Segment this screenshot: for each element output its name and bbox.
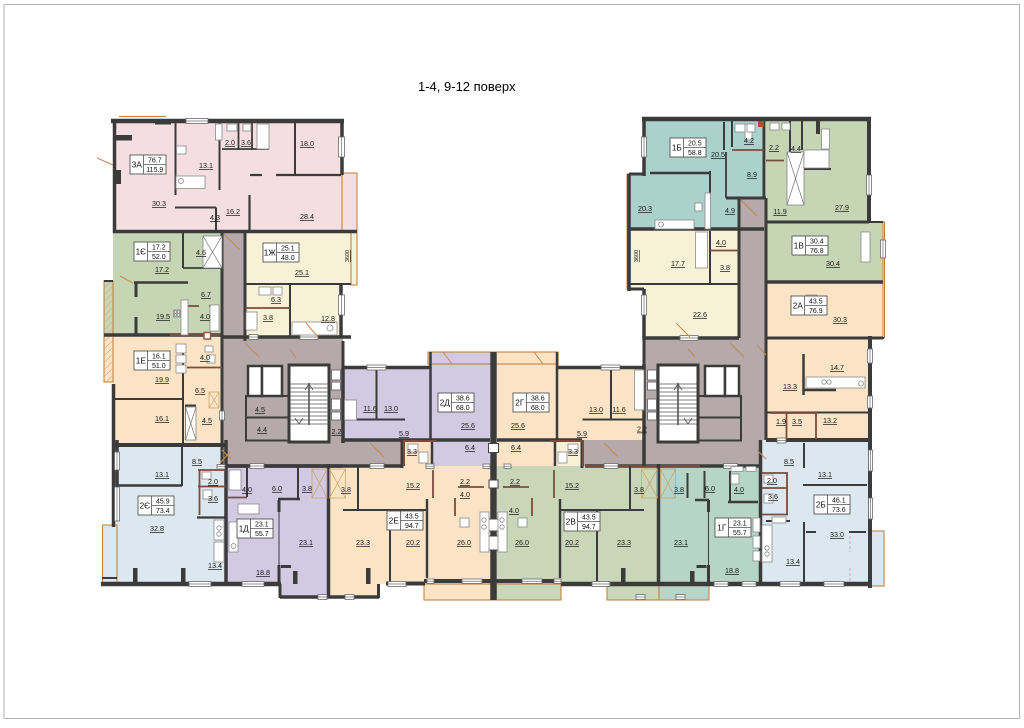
svg-text:2.2: 2.2 bbox=[769, 143, 779, 152]
svg-text:3.8: 3.8 bbox=[302, 484, 312, 493]
svg-text:30.4: 30.4 bbox=[826, 259, 840, 268]
svg-text:16.1: 16.1 bbox=[155, 414, 169, 423]
svg-text:33.0: 33.0 bbox=[830, 530, 844, 539]
svg-text:13.1: 13.1 bbox=[818, 470, 832, 479]
svg-text:11.9: 11.9 bbox=[773, 207, 786, 216]
svg-text:13.4: 13.4 bbox=[786, 557, 800, 566]
svg-text:16.2: 16.2 bbox=[226, 207, 240, 216]
svg-text:13.0: 13.0 bbox=[589, 405, 603, 414]
svg-text:25.1: 25.1 bbox=[295, 268, 309, 277]
svg-text:76.7: 76.7 bbox=[148, 158, 162, 165]
svg-text:20.2: 20.2 bbox=[565, 538, 579, 547]
svg-text:30.4: 30.4 bbox=[810, 239, 824, 246]
svg-text:1.9: 1.9 bbox=[776, 417, 786, 426]
svg-text:6.3: 6.3 bbox=[271, 295, 281, 304]
svg-text:4.0: 4.0 bbox=[200, 312, 210, 321]
svg-text:73.6: 73.6 bbox=[832, 507, 846, 514]
svg-text:11.6: 11.6 bbox=[363, 404, 376, 413]
svg-text:3.6: 3.6 bbox=[768, 492, 778, 501]
svg-text:1Г: 1Г bbox=[717, 524, 727, 533]
svg-text:23.1: 23.1 bbox=[299, 538, 313, 547]
svg-text:48.0: 48.0 bbox=[281, 255, 295, 262]
svg-text:76.8: 76.8 bbox=[810, 248, 824, 255]
svg-text:20.3: 20.3 bbox=[638, 204, 652, 213]
svg-text:38.6: 38.6 bbox=[456, 396, 470, 403]
svg-text:73.4: 73.4 bbox=[156, 508, 170, 515]
svg-text:3.6: 3.6 bbox=[208, 494, 218, 503]
svg-text:1Є: 1Є bbox=[136, 248, 147, 257]
svg-text:4.5: 4.5 bbox=[202, 416, 212, 425]
svg-text:4.2: 4.2 bbox=[744, 136, 754, 145]
svg-text:3.6: 3.6 bbox=[241, 138, 251, 147]
svg-text:4.6: 4.6 bbox=[196, 248, 206, 257]
svg-text:4.0: 4.0 bbox=[509, 506, 519, 515]
svg-text:4.0: 4.0 bbox=[200, 353, 210, 362]
svg-text:3.8: 3.8 bbox=[720, 263, 730, 272]
svg-text:2.0: 2.0 bbox=[767, 476, 777, 485]
svg-text:30.3: 30.3 bbox=[833, 315, 847, 324]
svg-text:23.1: 23.1 bbox=[733, 521, 747, 528]
svg-text:18.0: 18.0 bbox=[300, 139, 314, 148]
svg-text:2Є: 2Є bbox=[140, 502, 151, 511]
svg-text:1Д: 1Д bbox=[239, 525, 250, 534]
svg-text:2Г: 2Г bbox=[515, 399, 525, 408]
svg-text:15.2: 15.2 bbox=[406, 481, 420, 490]
svg-text:6.7: 6.7 bbox=[201, 290, 211, 299]
svg-text:2Е: 2Е bbox=[389, 517, 400, 526]
svg-text:2В: 2В bbox=[566, 518, 577, 527]
svg-text:2.2: 2.2 bbox=[637, 425, 647, 434]
svg-text:4.0: 4.0 bbox=[716, 238, 726, 247]
svg-text:25.1: 25.1 bbox=[281, 246, 295, 253]
svg-text:55.7: 55.7 bbox=[733, 530, 747, 537]
svg-text:4.0: 4.0 bbox=[242, 485, 252, 494]
svg-text:2.0: 2.0 bbox=[208, 477, 218, 486]
svg-text:2Б: 2Б bbox=[816, 501, 826, 510]
svg-text:3.8: 3.8 bbox=[674, 485, 684, 494]
svg-text:1Б: 1Б bbox=[672, 144, 682, 153]
svg-text:94.7: 94.7 bbox=[582, 524, 596, 531]
svg-text:20.2: 20.2 bbox=[406, 538, 420, 547]
svg-text:23.3: 23.3 bbox=[356, 538, 370, 547]
svg-text:32.8: 32.8 bbox=[150, 524, 164, 533]
svg-text:68.0: 68.0 bbox=[456, 405, 470, 412]
svg-text:18.8: 18.8 bbox=[256, 568, 270, 577]
svg-text:30.3: 30.3 bbox=[152, 199, 166, 208]
svg-text:13.4: 13.4 bbox=[208, 561, 222, 570]
svg-text:3600: 3600 bbox=[345, 250, 351, 262]
svg-text:6.0: 6.0 bbox=[272, 484, 282, 493]
svg-text:43.5: 43.5 bbox=[809, 299, 823, 306]
svg-text:23.1: 23.1 bbox=[674, 538, 688, 547]
svg-text:8.9: 8.9 bbox=[747, 170, 757, 179]
svg-text:19.9: 19.9 bbox=[155, 375, 169, 384]
svg-text:17.2: 17.2 bbox=[155, 265, 169, 274]
svg-text:3.8: 3.8 bbox=[634, 485, 644, 494]
svg-text:2.2: 2.2 bbox=[510, 477, 520, 486]
svg-text:5.9: 5.9 bbox=[577, 429, 587, 438]
svg-text:4.9: 4.9 bbox=[725, 206, 735, 215]
svg-text:4.5: 4.5 bbox=[255, 405, 265, 414]
svg-text:1-4, 9-12 поверх: 1-4, 9-12 поверх bbox=[418, 79, 516, 94]
svg-text:16.1: 16.1 bbox=[152, 354, 166, 361]
svg-text:3.8: 3.8 bbox=[263, 313, 273, 322]
svg-text:43.5: 43.5 bbox=[582, 515, 596, 522]
svg-text:6.4: 6.4 bbox=[511, 443, 521, 452]
svg-text:18.8: 18.8 bbox=[725, 566, 739, 575]
svg-text:38.6: 38.6 bbox=[531, 396, 545, 403]
svg-text:1Ж: 1Ж bbox=[264, 249, 277, 258]
svg-text:68.0: 68.0 bbox=[531, 405, 545, 412]
svg-text:26.0: 26.0 bbox=[515, 538, 529, 547]
svg-text:76.9: 76.9 bbox=[809, 308, 823, 315]
svg-text:94.7: 94.7 bbox=[405, 523, 419, 530]
svg-text:19.5: 19.5 bbox=[156, 312, 170, 321]
svg-text:115.9: 115.9 bbox=[146, 167, 163, 174]
svg-text:13.1: 13.1 bbox=[155, 470, 169, 479]
svg-text:1В: 1В bbox=[794, 242, 805, 251]
svg-text:3.3: 3.3 bbox=[407, 447, 417, 456]
svg-text:25.6: 25.6 bbox=[511, 421, 525, 430]
svg-text:52.0: 52.0 bbox=[152, 254, 166, 261]
svg-text:14.7: 14.7 bbox=[830, 363, 844, 372]
svg-text:15.2: 15.2 bbox=[565, 481, 579, 490]
svg-text:4.4: 4.4 bbox=[257, 425, 267, 434]
svg-text:27.9: 27.9 bbox=[835, 203, 849, 212]
svg-text:3А: 3А bbox=[132, 161, 143, 170]
svg-text:4.3: 4.3 bbox=[210, 213, 220, 222]
svg-text:3.5: 3.5 bbox=[792, 417, 802, 426]
svg-text:55.7: 55.7 bbox=[255, 531, 269, 538]
svg-text:4.4: 4.4 bbox=[791, 144, 801, 153]
svg-text:2.0: 2.0 bbox=[225, 138, 235, 147]
svg-text:6.4: 6.4 bbox=[465, 443, 475, 452]
svg-text:2А: 2А bbox=[793, 302, 804, 311]
svg-text:2.2: 2.2 bbox=[332, 427, 342, 436]
svg-text:46.1: 46.1 bbox=[832, 498, 846, 505]
svg-text:13.1: 13.1 bbox=[199, 161, 213, 170]
svg-text:20.5: 20.5 bbox=[711, 150, 725, 159]
svg-text:23.1: 23.1 bbox=[255, 522, 269, 529]
svg-text:8.5: 8.5 bbox=[192, 457, 202, 466]
svg-text:13.3: 13.3 bbox=[783, 382, 797, 391]
svg-text:3.3: 3.3 bbox=[568, 447, 578, 456]
svg-text:12.8: 12.8 bbox=[321, 314, 335, 323]
svg-text:4.0: 4.0 bbox=[734, 485, 744, 494]
svg-text:17.2: 17.2 bbox=[152, 245, 166, 252]
svg-text:2Д: 2Д bbox=[440, 399, 451, 408]
svg-text:3.8: 3.8 bbox=[341, 485, 351, 494]
svg-text:11.6: 11.6 bbox=[612, 405, 625, 414]
svg-text:13.2: 13.2 bbox=[823, 416, 837, 425]
svg-text:25.6: 25.6 bbox=[461, 421, 475, 430]
svg-text:13.0: 13.0 bbox=[384, 404, 398, 413]
svg-text:1Е: 1Е bbox=[136, 357, 147, 366]
svg-text:23.3: 23.3 bbox=[617, 538, 631, 547]
svg-text:43.5: 43.5 bbox=[405, 514, 419, 521]
svg-text:45.9: 45.9 bbox=[156, 499, 170, 506]
svg-text:20.5: 20.5 bbox=[688, 141, 702, 148]
svg-text:51.0: 51.0 bbox=[152, 363, 166, 370]
svg-text:22.6: 22.6 bbox=[693, 310, 707, 319]
svg-text:26.0: 26.0 bbox=[457, 538, 471, 547]
svg-text:4.0: 4.0 bbox=[460, 490, 470, 499]
svg-text:58.8: 58.8 bbox=[688, 150, 702, 157]
svg-text:2.2: 2.2 bbox=[460, 477, 470, 486]
svg-text:28.4: 28.4 bbox=[300, 212, 314, 221]
svg-text:6.0: 6.0 bbox=[705, 484, 715, 493]
svg-text:8.5: 8.5 bbox=[784, 457, 794, 466]
svg-text:17.7: 17.7 bbox=[671, 259, 685, 268]
svg-text:3600: 3600 bbox=[634, 250, 640, 262]
svg-text:5.9: 5.9 bbox=[399, 429, 409, 438]
svg-text:6.5: 6.5 bbox=[195, 386, 205, 395]
